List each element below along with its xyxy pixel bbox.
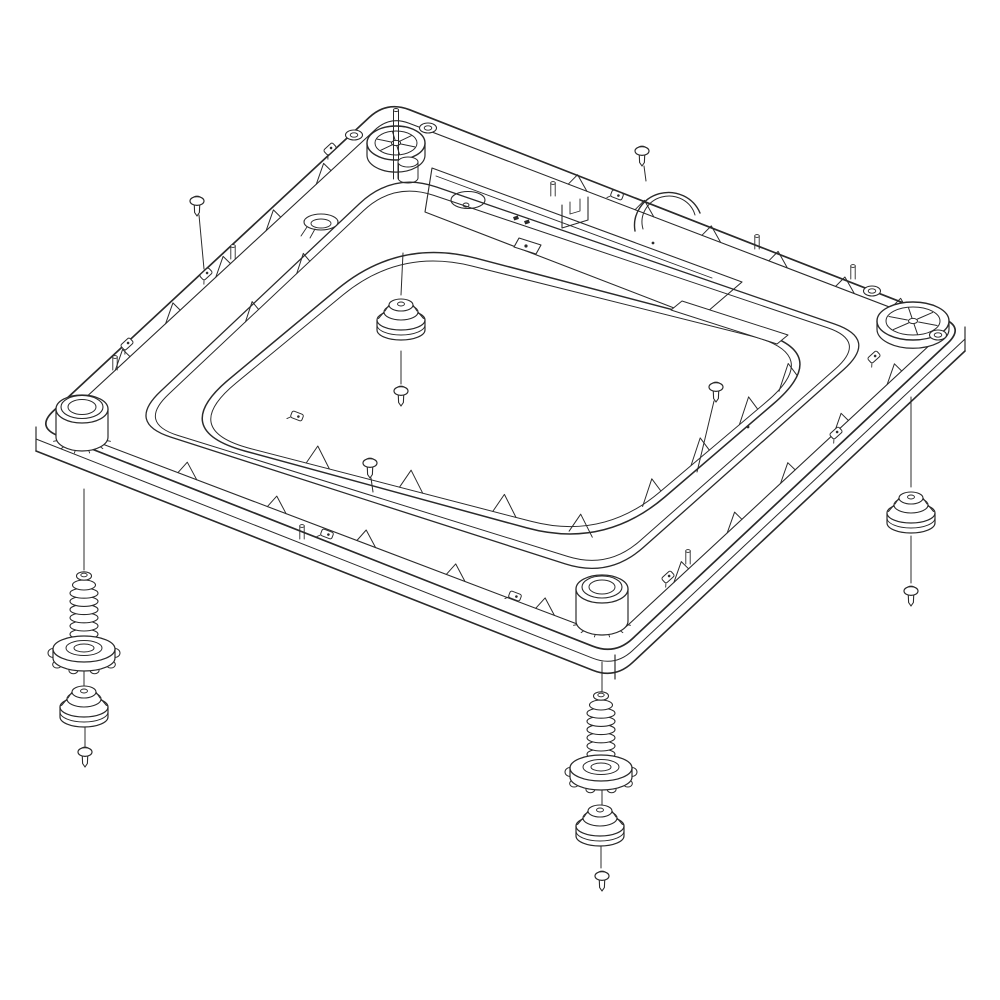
center-panel-inner-line bbox=[211, 261, 792, 527]
foot-pad-bottom bbox=[576, 805, 624, 846]
pin bbox=[551, 182, 556, 196]
base-frame bbox=[36, 107, 965, 679]
screw-left-foot bbox=[78, 747, 92, 767]
platform-edge-line bbox=[436, 176, 712, 278]
screw-top-left bbox=[190, 196, 204, 216]
drain-cup bbox=[301, 214, 338, 238]
leveling-leg-nut-left bbox=[48, 636, 120, 674]
base-thickness-edge bbox=[36, 327, 965, 679]
rim-ribs-lower-left bbox=[178, 462, 554, 615]
circular-recess bbox=[451, 192, 485, 209]
fastener-mark bbox=[524, 219, 530, 224]
pin bbox=[851, 265, 856, 279]
screw-left-middle bbox=[363, 458, 377, 478]
screw-bottom-foot bbox=[595, 871, 609, 891]
rim-pins bbox=[113, 182, 856, 564]
clip bbox=[287, 410, 304, 424]
exploded-parts-diagram-page bbox=[0, 0, 1000, 1000]
clip bbox=[607, 189, 624, 203]
screw-top-right bbox=[635, 146, 649, 166]
clip bbox=[827, 426, 844, 443]
corner-mounts bbox=[54, 109, 949, 637]
clip bbox=[317, 528, 334, 542]
leg-mount-right bbox=[864, 286, 950, 348]
leg-mount-bottom bbox=[574, 575, 631, 637]
vent-slot bbox=[671, 301, 788, 344]
clip bbox=[659, 570, 676, 587]
rim-ribs-lower-right bbox=[674, 364, 902, 583]
leveling-leg-nut-bottom bbox=[565, 755, 637, 793]
rim-clips bbox=[118, 142, 882, 603]
base-outer-edge bbox=[46, 107, 955, 650]
channel-outer-wall-base bbox=[155, 191, 849, 560]
clip bbox=[321, 142, 338, 159]
clip bbox=[197, 267, 214, 284]
diagram-canvas bbox=[0, 0, 1000, 1000]
fastener-mark bbox=[513, 215, 519, 220]
moat-gussets-lower-left bbox=[306, 446, 592, 537]
pin bbox=[686, 550, 691, 564]
clip bbox=[118, 337, 135, 354]
leader-screw-top-right bbox=[644, 166, 646, 181]
leg-mount-left bbox=[54, 395, 111, 453]
screw-right-foot bbox=[904, 586, 918, 606]
center-panel-edge bbox=[202, 253, 800, 534]
clip bbox=[865, 350, 882, 367]
foot-pad-center bbox=[377, 299, 425, 340]
screw-right-middle bbox=[709, 382, 723, 402]
dome-cover bbox=[635, 192, 700, 231]
screw-center-foot bbox=[394, 386, 408, 406]
leader-screw-top-left bbox=[199, 215, 204, 269]
u-bracket-notch bbox=[570, 199, 580, 214]
top-deck-details bbox=[301, 168, 788, 344]
moat-gussets-upper-left bbox=[246, 253, 310, 321]
foot-pad-left bbox=[60, 686, 108, 727]
mold-dot bbox=[652, 242, 655, 245]
pin bbox=[231, 245, 236, 259]
foot-pad-right bbox=[887, 492, 935, 533]
leg-mount-top bbox=[346, 109, 437, 180]
leader-center-panel-to-foot bbox=[401, 253, 403, 295]
mold-dot bbox=[747, 426, 750, 429]
